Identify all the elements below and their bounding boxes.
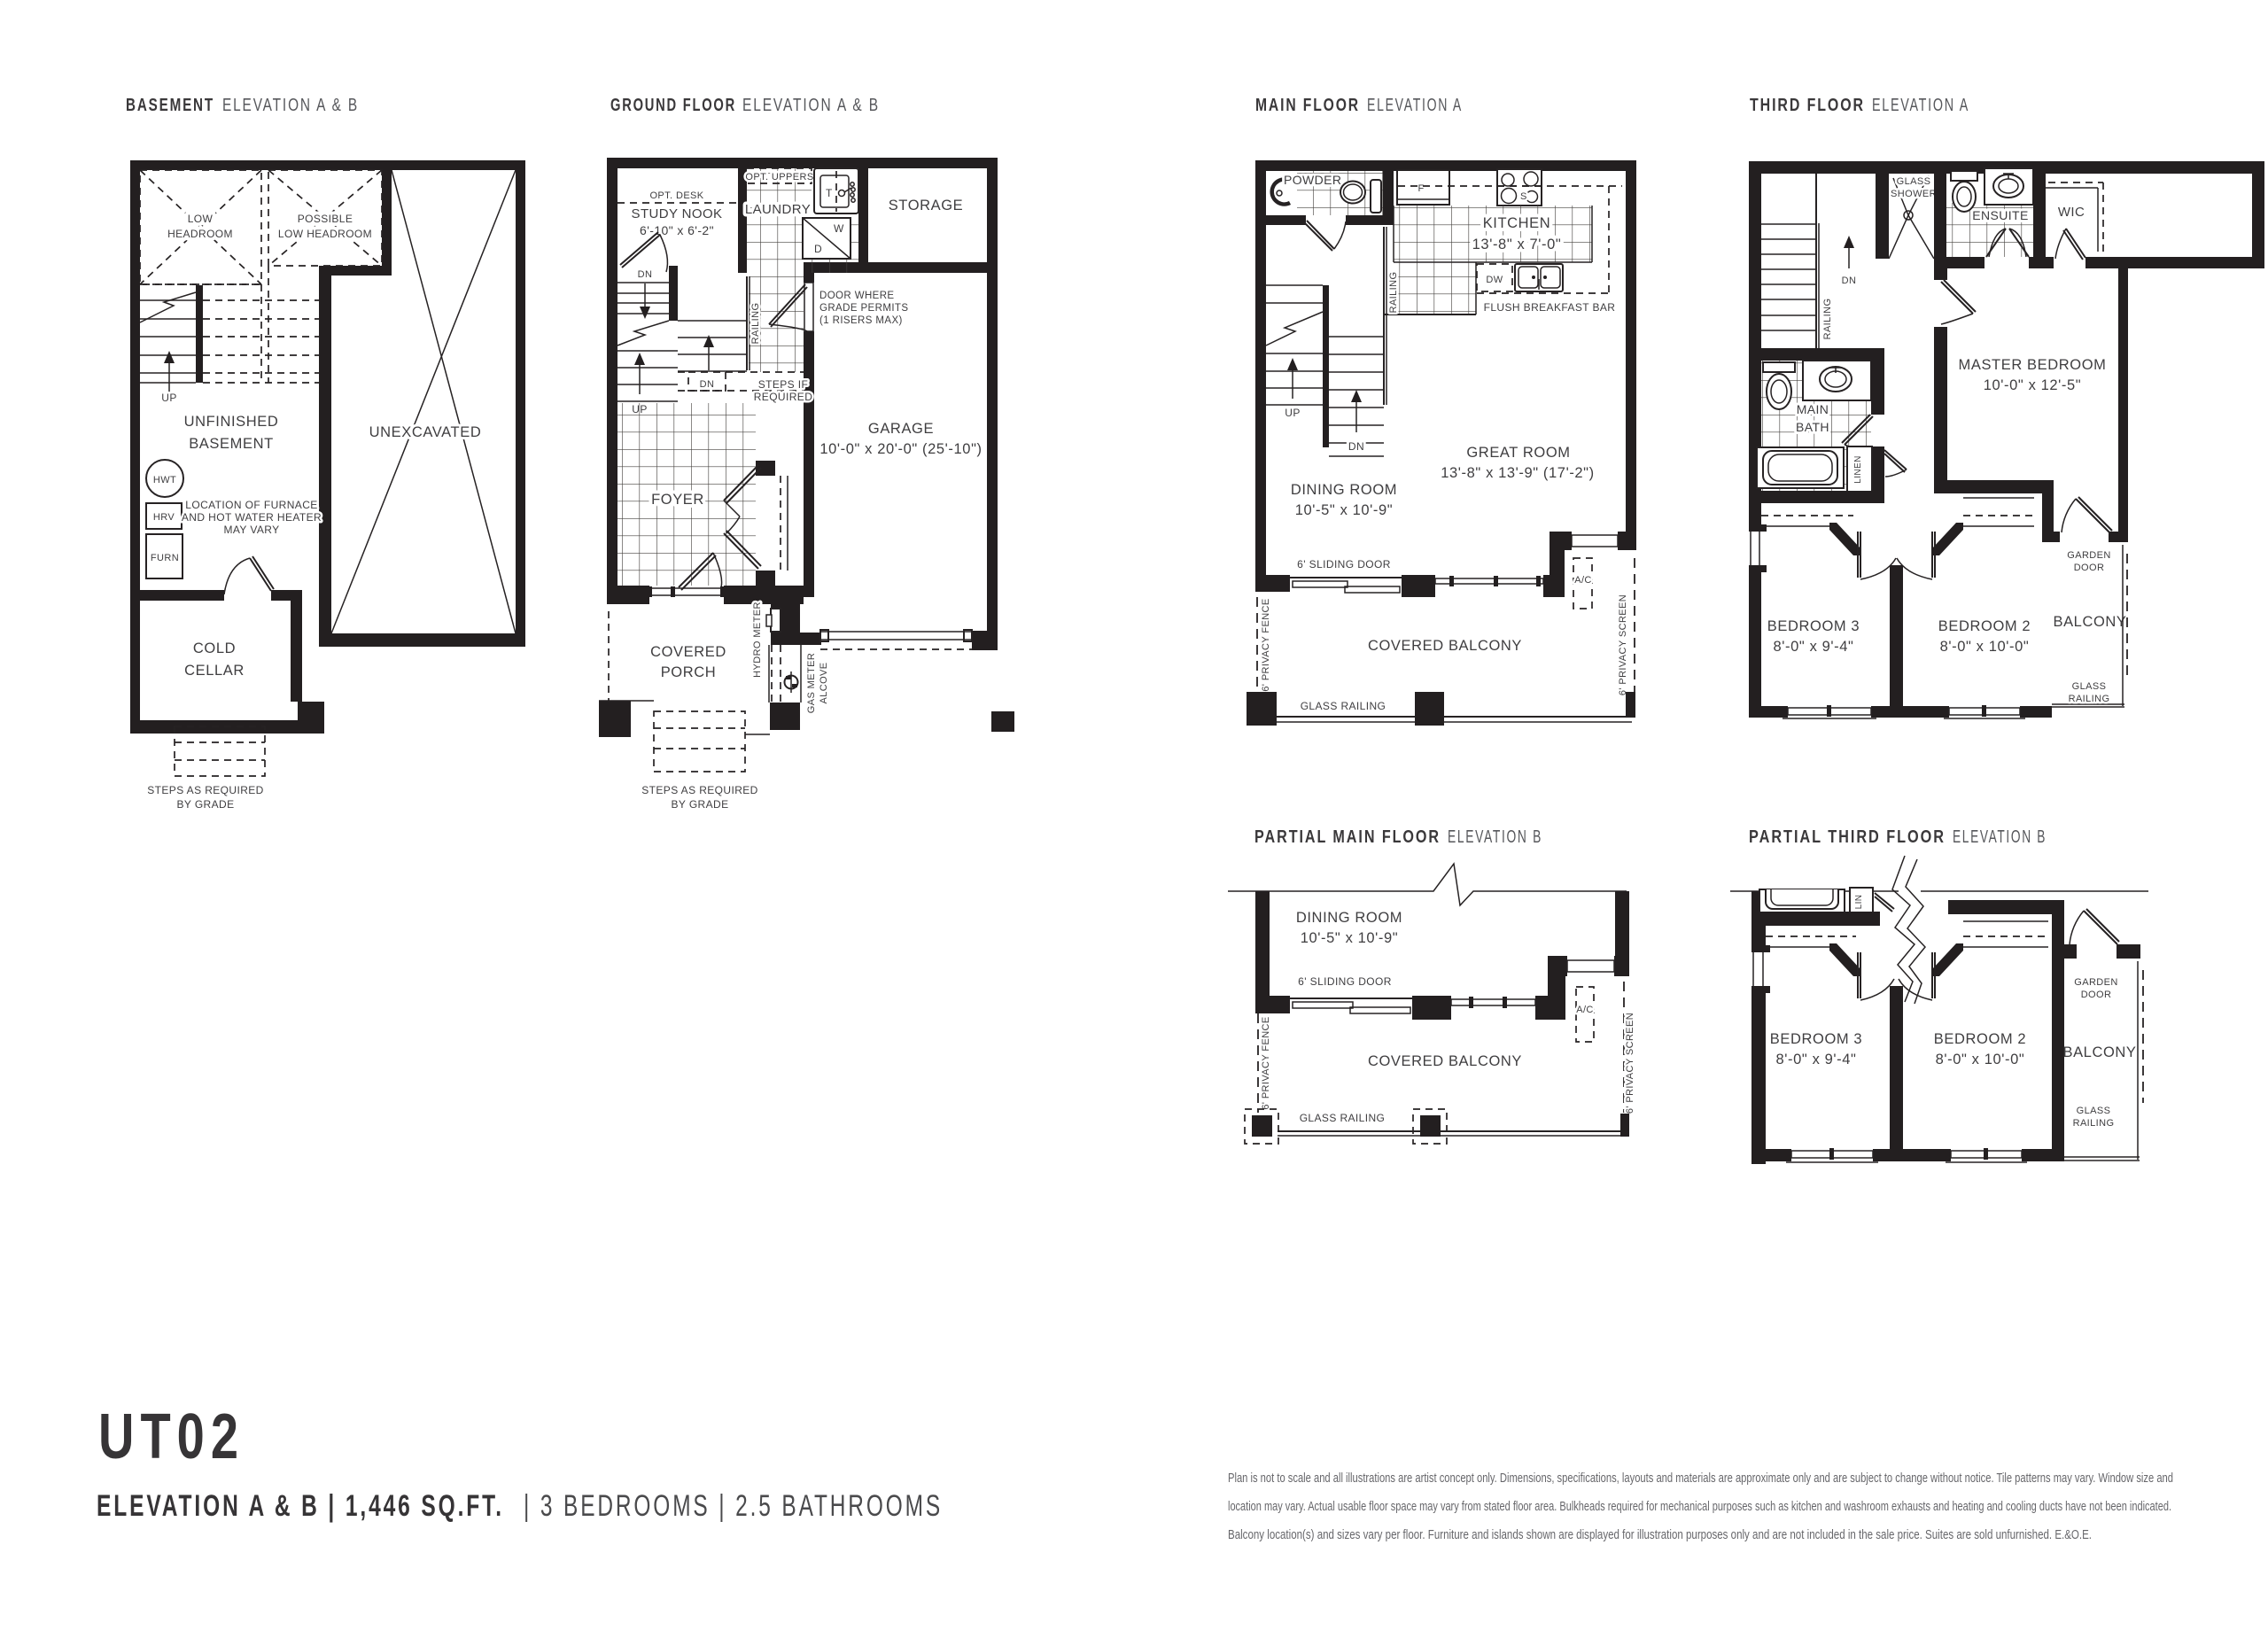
svg-text:POSSIBLE: POSSIBLE: [298, 213, 353, 225]
svg-text:8'-0" x 10'-0": 8'-0" x 10'-0": [1940, 639, 2030, 655]
svg-text:STUDY NOOK: STUDY NOOK: [632, 206, 723, 221]
svg-text:WIC: WIC: [2058, 205, 2085, 220]
svg-text:13'-8" x 13'-9" (17'-2"): 13'-8" x 13'-9" (17'-2"): [1441, 465, 1595, 481]
svg-text:GLASS: GLASS: [2072, 681, 2107, 692]
svg-text:RAILING: RAILING: [2069, 694, 2110, 704]
svg-text:T: T: [826, 187, 833, 199]
svg-text:MAIN: MAIN: [1797, 402, 1829, 416]
svg-text:ELEVATION B: ELEVATION B: [1448, 827, 1542, 847]
svg-text:DN: DN: [700, 379, 715, 390]
svg-text:GARDEN: GARDEN: [2067, 550, 2110, 561]
svg-text:8'-0" x 9'-4": 8'-0" x 9'-4": [1776, 1052, 1857, 1067]
svg-text:OPT. DESK: OPT. DESK: [649, 190, 703, 201]
svg-text:STEPS AS REQUIRED: STEPS AS REQUIRED: [641, 784, 758, 796]
svg-text:PARTIAL MAIN FLOOR: PARTIAL MAIN FLOOR: [1254, 827, 1441, 847]
svg-text:COVERED BALCONY: COVERED BALCONY: [1368, 638, 1522, 654]
svg-text:S: S: [1520, 191, 1527, 202]
svg-text:MAY VARY: MAY VARY: [223, 524, 279, 536]
svg-text:6'-10" x 6'-2": 6'-10" x 6'-2": [640, 223, 714, 237]
svg-text:8'-0" x 10'-0": 8'-0" x 10'-0": [1936, 1052, 2025, 1067]
svg-text:F: F: [1417, 183, 1424, 194]
svg-text:BEDROOM 3: BEDROOM 3: [1767, 618, 1860, 634]
svg-text:LOW: LOW: [188, 213, 214, 225]
svg-text:LINEN: LINEN: [1853, 455, 1863, 483]
svg-text:HEADROOM: HEADROOM: [167, 228, 233, 240]
svg-text:A/C: A/C: [1576, 1005, 1594, 1015]
svg-text:6' SLIDING DOOR: 6' SLIDING DOOR: [1298, 975, 1392, 988]
svg-text:6' SLIDING DOOR: 6' SLIDING DOOR: [1297, 558, 1391, 571]
svg-text:LOW HEADROOM: LOW HEADROOM: [278, 228, 372, 240]
svg-text:UP: UP: [1285, 407, 1300, 419]
svg-text:BY GRADE: BY GRADE: [177, 798, 235, 811]
svg-text:BASEMENT: BASEMENT: [126, 96, 214, 115]
svg-text:ELEVATION A: ELEVATION A: [1872, 96, 1969, 115]
svg-text:GLASS: GLASS: [2077, 1106, 2111, 1116]
svg-text:SHOWER: SHOWER: [1891, 189, 1937, 199]
svg-text:RAILING: RAILING: [1822, 299, 1833, 340]
svg-text:HRV: HRV: [153, 512, 175, 523]
svg-text:REQUIRED: REQUIRED: [754, 391, 813, 403]
svg-text:DN: DN: [1842, 276, 1857, 286]
svg-text:BALCONY: BALCONY: [2062, 1044, 2136, 1060]
svg-text:STEPS IF: STEPS IF: [758, 378, 809, 391]
svg-text:DINING ROOM: DINING ROOM: [1296, 910, 1402, 926]
svg-text:ELEVATION B: ELEVATION B: [1953, 827, 2047, 847]
svg-text:OPT. UPPERS: OPT. UPPERS: [745, 172, 813, 182]
svg-text:UNFINISHED: UNFINISHED: [184, 414, 279, 430]
svg-text:CELLAR: CELLAR: [184, 663, 245, 679]
svg-text:RAILING: RAILING: [1388, 272, 1399, 314]
svg-text:ENSUITE: ENSUITE: [1972, 208, 2028, 222]
svg-text:GRADE PERMITS: GRADE PERMITS: [819, 303, 908, 314]
svg-text:Balcony location(s) and sizes: Balcony location(s) and sizes vary per f…: [1228, 1528, 2092, 1542]
svg-text:DOOR WHERE: DOOR WHERE: [819, 291, 895, 301]
svg-text:10'-0" x 12'-5": 10'-0" x 12'-5": [1984, 377, 2081, 393]
svg-text:location may vary. Actual usab: location may vary. Actual usable floor s…: [1228, 1500, 2171, 1514]
svg-text:RAILING: RAILING: [2073, 1118, 2115, 1129]
svg-text:ELEVATION A: ELEVATION A: [1367, 96, 1463, 115]
svg-text:6' PRIVACY SCREEN: 6' PRIVACY SCREEN: [1618, 594, 1628, 695]
svg-text:| 3 BEDROOMS | 2.5 BATHROOMS: | 3 BEDROOMS | 2.5 BATHROOMS: [524, 1489, 943, 1523]
svg-text:FURN: FURN: [151, 553, 179, 563]
svg-text:GARAGE: GARAGE: [868, 421, 934, 437]
svg-text:GARDEN: GARDEN: [2074, 977, 2117, 988]
svg-text:BALCONY: BALCONY: [2053, 614, 2126, 630]
svg-text:MASTER BEDROOM: MASTER BEDROOM: [1959, 357, 2107, 373]
svg-text:DINING ROOM: DINING ROOM: [1291, 482, 1397, 498]
svg-text:COVERED BALCONY: COVERED BALCONY: [1368, 1053, 1522, 1069]
svg-text:ELEVATION A & B: ELEVATION A & B: [222, 96, 359, 115]
svg-text:(1 RISERS MAX): (1 RISERS MAX): [819, 315, 903, 326]
svg-text:GLASS RAILING: GLASS RAILING: [1300, 1112, 1386, 1124]
svg-text:Plan is not to scale and all i: Plan is not to scale and all illustratio…: [1228, 1471, 2173, 1486]
svg-text:DN: DN: [638, 269, 653, 280]
svg-text:PORCH: PORCH: [661, 664, 717, 680]
svg-text:10'-5" x 10'-9": 10'-5" x 10'-9": [1301, 930, 1398, 946]
svg-text:PARTIAL THIRD FLOOR: PARTIAL THIRD FLOOR: [1749, 827, 1946, 847]
svg-text:GAS METER: GAS METER: [806, 653, 817, 713]
svg-text:GLASS RAILING: GLASS RAILING: [1301, 700, 1386, 712]
svg-text:A/C: A/C: [1574, 575, 1592, 586]
svg-text:6' PRIVACY SCREEN: 6' PRIVACY SCREEN: [1625, 1013, 1635, 1114]
svg-text:BEDROOM 3: BEDROOM 3: [1770, 1031, 1862, 1047]
svg-text:UT02: UT02: [98, 1401, 245, 1472]
svg-text:LAUNDRY: LAUNDRY: [745, 202, 811, 217]
svg-text:D: D: [814, 243, 822, 255]
svg-text:10'-5" x 10'-9": 10'-5" x 10'-9": [1295, 502, 1393, 518]
svg-text:BEDROOM 2: BEDROOM 2: [1934, 1031, 2026, 1047]
svg-text:UP: UP: [161, 392, 176, 404]
svg-text:HYDRO METER: HYDRO METER: [752, 602, 763, 678]
svg-text:FOYER: FOYER: [651, 492, 704, 508]
svg-text:6' PRIVACY FENCE: 6' PRIVACY FENCE: [1261, 598, 1271, 691]
svg-text:GROUND FLOOR: GROUND FLOOR: [610, 96, 736, 115]
svg-text:10'-0" x 20'-0" (25'-10"): 10'-0" x 20'-0" (25'-10"): [819, 441, 982, 457]
svg-text:ELEVATION A & B: ELEVATION A & B: [742, 96, 880, 115]
svg-text:6' PRIVACY FENCE: 6' PRIVACY FENCE: [1261, 1016, 1271, 1109]
svg-text:BY GRADE: BY GRADE: [672, 798, 729, 811]
svg-text:ELEVATION A & B | 1,446 SQ.FT.: ELEVATION A & B | 1,446 SQ.FT.: [97, 1489, 504, 1523]
svg-text:THIRD FLOOR: THIRD FLOOR: [1750, 96, 1865, 115]
svg-text:MAIN FLOOR: MAIN FLOOR: [1255, 96, 1360, 115]
svg-text:AND HOT WATER HEATER: AND HOT WATER HEATER: [182, 511, 322, 524]
svg-text:BATH: BATH: [1796, 420, 1829, 434]
svg-text:ALCOVE: ALCOVE: [819, 662, 829, 703]
svg-text:13'-8" x 7'-0": 13'-8" x 7'-0": [1472, 237, 1562, 252]
svg-text:LIN: LIN: [1854, 895, 1864, 910]
svg-text:W: W: [834, 222, 844, 235]
svg-text:UNEXCAVATED: UNEXCAVATED: [369, 424, 482, 440]
svg-text:HWT: HWT: [153, 475, 176, 485]
svg-text:STEPS AS REQUIRED: STEPS AS REQUIRED: [147, 784, 264, 796]
svg-text:LOCATION OF FURNACE: LOCATION OF FURNACE: [185, 499, 317, 511]
svg-text:KITCHEN: KITCHEN: [1483, 215, 1551, 231]
svg-text:DW: DW: [1486, 275, 1503, 285]
svg-text:GLASS: GLASS: [1897, 176, 1931, 187]
svg-text:GREAT ROOM: GREAT ROOM: [1466, 445, 1570, 461]
svg-text:RAILING: RAILING: [750, 303, 761, 345]
svg-text:POWDER: POWDER: [1284, 173, 1341, 187]
svg-text:8'-0" x 9'-4": 8'-0" x 9'-4": [1774, 639, 1854, 655]
svg-text:BEDROOM 2: BEDROOM 2: [1938, 618, 2031, 634]
svg-text:COVERED: COVERED: [650, 644, 726, 660]
svg-text:DN: DN: [1348, 440, 1364, 453]
svg-text:FLUSH BREAKFAST BAR: FLUSH BREAKFAST BAR: [1484, 301, 1616, 314]
svg-text:COLD: COLD: [193, 640, 236, 656]
svg-text:BASEMENT: BASEMENT: [189, 436, 274, 452]
svg-text:DOOR: DOOR: [2081, 990, 2112, 1000]
svg-text:STORAGE: STORAGE: [889, 198, 964, 213]
svg-text:DOOR: DOOR: [2074, 563, 2105, 573]
